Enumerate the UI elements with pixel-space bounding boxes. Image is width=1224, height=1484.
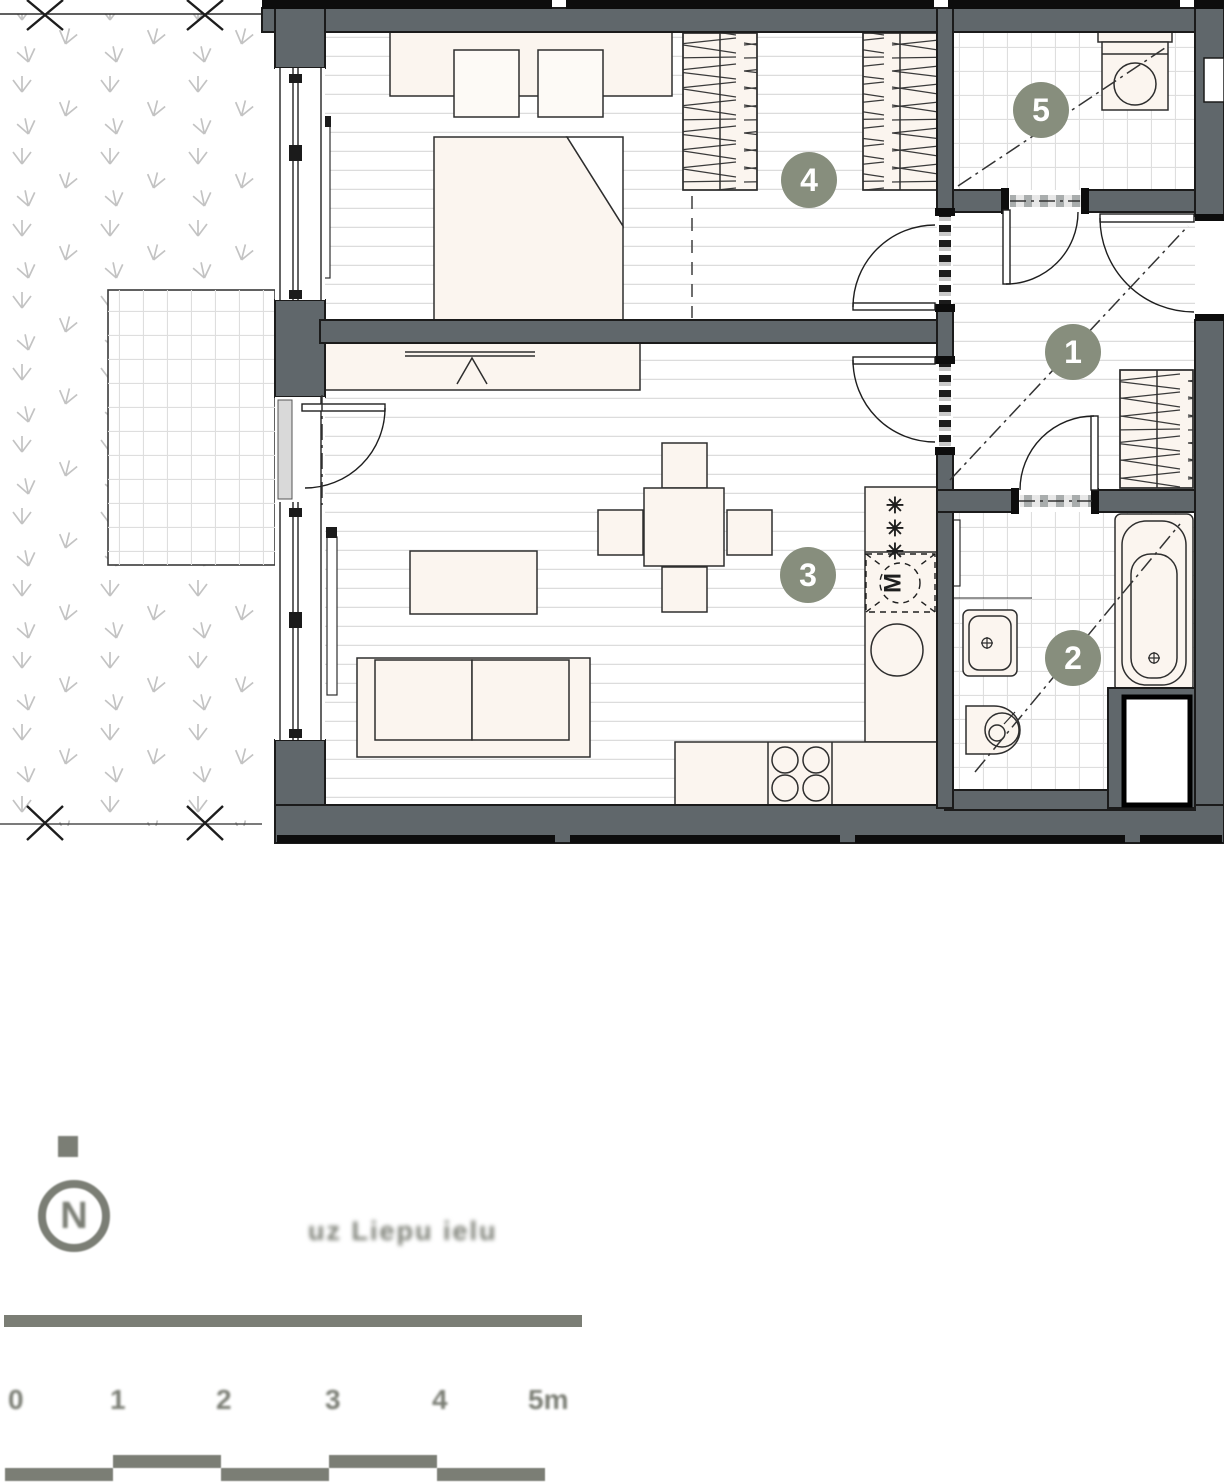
utility-room: [1098, 30, 1172, 110]
tv-wardrobe: [325, 343, 640, 390]
scale-bar-segment: [437, 1468, 545, 1481]
floor-plan: ✳ ✳ ✳ M: [0, 0, 1224, 850]
scale-label-1: 1: [110, 1384, 126, 1416]
wall-left-pier1: [275, 8, 325, 68]
hallway: [1120, 370, 1193, 488]
footer-divider: [4, 1315, 582, 1327]
wall-mid: [320, 320, 945, 343]
oven-letter: M: [880, 573, 907, 593]
room-badge-5: 5: [1013, 82, 1069, 138]
radiator-icon: [327, 537, 337, 695]
scale-bar-segment: [5, 1468, 113, 1481]
scale-bar-segment: [329, 1455, 437, 1468]
room-badge-3: 3: [780, 547, 836, 603]
balcony-door-frame: [275, 397, 325, 502]
pillow-icon: [538, 50, 603, 117]
svg-text:3: 3: [799, 557, 817, 593]
svg-text:1: 1: [1064, 334, 1082, 370]
plan-caption: uz Liepu ielu: [308, 1216, 608, 1247]
scale-label-3: 3: [325, 1384, 341, 1416]
wall-right-upper: [1195, 8, 1224, 216]
scale-label-0: 0: [8, 1384, 24, 1416]
scale-label-5: 5m: [528, 1384, 568, 1416]
shaft: [1124, 697, 1190, 805]
compass-cap: [58, 1136, 78, 1157]
wall-notch: [1204, 58, 1224, 102]
wall-right-lower: [1195, 320, 1224, 843]
bathtub-icon: [1115, 514, 1193, 692]
pillow-icon: [454, 50, 519, 117]
wall-u5-hall-left: [953, 190, 1003, 212]
wall-hall-bath-left: [937, 490, 1013, 512]
room-badge-1: 1: [1045, 324, 1101, 380]
wall-u5-hall-right: [1085, 190, 1195, 212]
sofa-cushion: [472, 660, 569, 740]
chair-icon: [662, 567, 707, 612]
floor-plan-page: ✳ ✳ ✳ M: [0, 0, 1224, 1484]
toilet-icon: [966, 706, 1020, 754]
room-badge-2: 2: [1045, 630, 1101, 686]
scale-bar-segment: [221, 1468, 329, 1481]
dining-table-icon: [644, 488, 724, 566]
wall-top: [262, 8, 1224, 32]
svg-text:5: 5: [1032, 92, 1050, 128]
chair-icon: [662, 443, 707, 488]
wall-column-top: [937, 8, 953, 215]
compass-letter: N: [38, 1180, 110, 1252]
bedroom-window: [275, 68, 325, 300]
scale-bar-segment: [113, 1455, 221, 1468]
living-window: [275, 502, 325, 740]
headboard-shelf: [390, 30, 672, 96]
scale-label-2: 2: [216, 1384, 232, 1416]
terrace: [108, 290, 275, 565]
wall-column-mid: [937, 305, 953, 362]
chair-icon: [598, 510, 643, 555]
wall-hall-bath-right: [1098, 490, 1195, 512]
room-badge-4: 4: [781, 152, 837, 208]
svg-text:✳: ✳: [886, 539, 904, 564]
chair-icon: [727, 510, 772, 555]
svg-text:✳: ✳: [886, 516, 904, 541]
coffee-table-icon: [410, 551, 537, 614]
svg-text:✳: ✳: [886, 493, 904, 518]
sofa-cushion: [375, 660, 472, 740]
scale-label-4: 4: [432, 1384, 448, 1416]
wall-left-pier2: [275, 300, 325, 397]
svg-text:4: 4: [800, 162, 818, 198]
svg-text:2: 2: [1064, 640, 1082, 676]
